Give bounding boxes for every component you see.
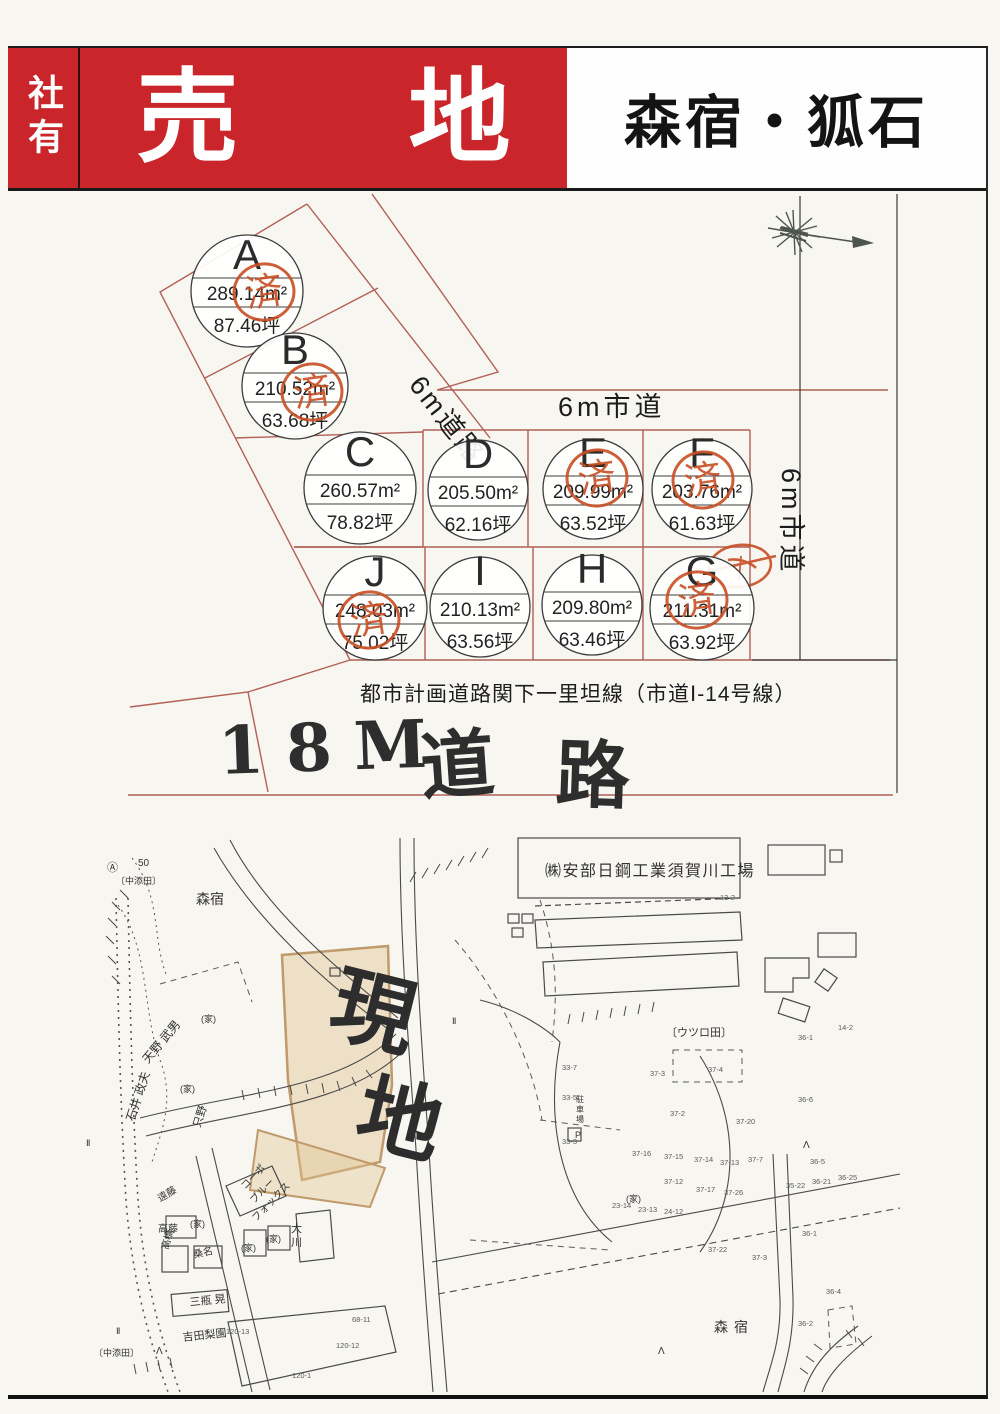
lot-number: 68-11 [352, 1315, 371, 1324]
lot-number: 36-2 [798, 1319, 813, 1328]
map-label: Λ [658, 1346, 665, 1357]
lot-number: 36-21 [812, 1177, 831, 1186]
lot-number: 37-20 [736, 1117, 755, 1126]
lot-number: 23-13 [638, 1205, 657, 1214]
lot-number: 36-25 [838, 1173, 857, 1182]
map-label: 場 [576, 1114, 584, 1124]
map-label: Ⅱ [116, 1326, 120, 1336]
lot-number: 37-15 [664, 1152, 683, 1161]
lot-number: 36-1 [802, 1229, 817, 1238]
map-label: 〔中添田〕 [116, 875, 161, 886]
lot-number: 36-1 [798, 1033, 813, 1042]
map-label: 50 [138, 858, 150, 869]
map-label: 森宿 [196, 891, 224, 907]
map-label: Ⅱ [452, 1016, 456, 1026]
map-label: 大 [291, 1221, 302, 1235]
map-label: Λ [803, 1140, 810, 1151]
lot-number: 120-1 [292, 1371, 311, 1380]
map-label: 吉田梨園 [182, 1325, 227, 1344]
map-label: Λ [156, 1346, 163, 1357]
map-label: 駐 [576, 1094, 584, 1104]
location-map: ㈱安部日鋼工業須賀川工場森宿〔中添田〕Ⓐ50現地〔ウツロ田〕天野 武男石井 政夫… [0, 0, 1000, 1414]
lot-number: 24-12 [664, 1207, 683, 1216]
lot-number: 37-7 [748, 1155, 763, 1164]
lot-number: 13-2 [720, 893, 735, 902]
lot-number: 35-22 [786, 1181, 805, 1190]
map-label: 天野 武男 [140, 1018, 184, 1066]
lot-number: 36-4 [826, 1287, 841, 1296]
lot-number: 36-5 [810, 1157, 825, 1166]
map-label: 〔ウツロ田〕 [666, 1026, 732, 1039]
lot-number: 37-2 [670, 1109, 685, 1118]
lot-number: 37-16 [632, 1149, 651, 1158]
map-label: (家) [180, 1083, 195, 1094]
map-label: 〔中添田〕 [94, 1347, 139, 1358]
lot-number: 23-14 [612, 1201, 631, 1210]
lot-number: 120-13 [226, 1327, 249, 1336]
map-label: (家) [266, 1233, 281, 1244]
map-label: (家) [241, 1242, 256, 1253]
lot-number: 37-13 [720, 1158, 739, 1167]
map-label: (家) [190, 1218, 205, 1229]
lot-number: 37-14 [694, 1155, 713, 1164]
lot-number: 37-3 [752, 1253, 767, 1262]
lot-number: 37-17 [696, 1185, 715, 1194]
map-label: Ⓐ [107, 861, 118, 874]
lot-number: 37-4 [708, 1065, 723, 1074]
dotted-boundary [116, 858, 180, 1392]
lot-number: 37-3 [650, 1069, 665, 1078]
map-roads [140, 838, 900, 1392]
map-label: (家) [201, 1013, 216, 1024]
map-label: 森宿 [714, 1319, 754, 1335]
map-label: ㈱安部日鋼工業須賀川工場 [545, 862, 755, 880]
lot-number: 36-6 [798, 1095, 813, 1104]
lot-number: 37-26 [724, 1188, 743, 1197]
lot-number: 33-7 [562, 1063, 577, 1072]
lot-number: 37-22 [708, 1245, 727, 1254]
map-label: Ⅱ [86, 1138, 90, 1148]
map-label: 車 [576, 1104, 584, 1114]
map-label: 三瓶 晃 [189, 1291, 226, 1309]
map-label: 只野 [190, 1104, 209, 1129]
lot-number: 120-12 [336, 1341, 359, 1350]
lot-number: 14-2 [838, 1023, 853, 1032]
map-label: 川 [291, 1237, 302, 1249]
lot-number: 33-5 [562, 1093, 577, 1102]
map-label: 遠藤 [155, 1183, 179, 1204]
map-label: 石井 政夫 [124, 1070, 153, 1123]
lot-number: 33-3 [562, 1137, 577, 1146]
lot-number: 37-12 [664, 1177, 683, 1186]
